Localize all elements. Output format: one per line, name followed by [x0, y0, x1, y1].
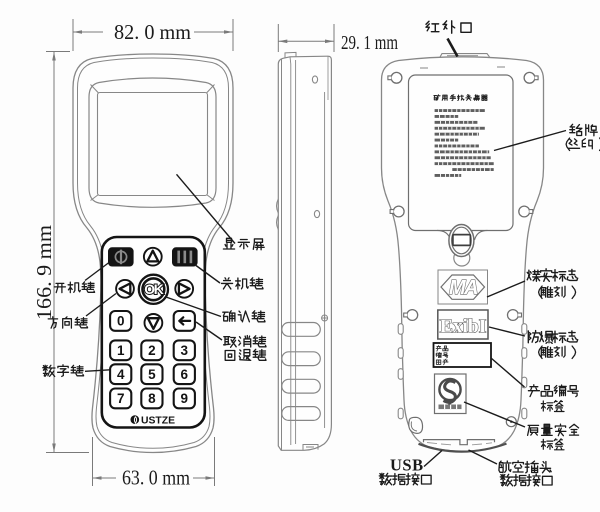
svg-text:OK: OK — [144, 282, 164, 297]
svg-text:8: 8 — [148, 391, 156, 406]
svg-text:29. 1 mm: 29. 1 mm — [341, 32, 398, 54]
svg-text:1: 1 — [117, 343, 125, 358]
svg-text:ExibI: ExibI — [440, 317, 487, 338]
svg-text:5: 5 — [148, 367, 156, 382]
svg-text:6: 6 — [181, 367, 189, 382]
svg-text:2: 2 — [148, 343, 156, 358]
svg-text:4: 4 — [117, 367, 125, 382]
svg-text:63. 0 mm: 63. 0 mm — [122, 466, 190, 490]
svg-text:82. 0 mm: 82. 0 mm — [114, 20, 191, 44]
svg-text:MA: MA — [449, 277, 477, 299]
svg-text:166. 9 mm: 166. 9 mm — [32, 225, 56, 320]
svg-text:9: 9 — [181, 391, 189, 406]
svg-text:7: 7 — [117, 391, 125, 406]
svg-text:3: 3 — [181, 343, 189, 358]
svg-text:USB: USB — [390, 456, 424, 475]
svg-text:0: 0 — [117, 314, 125, 329]
svg-text:USTZE: USTZE — [141, 415, 175, 427]
